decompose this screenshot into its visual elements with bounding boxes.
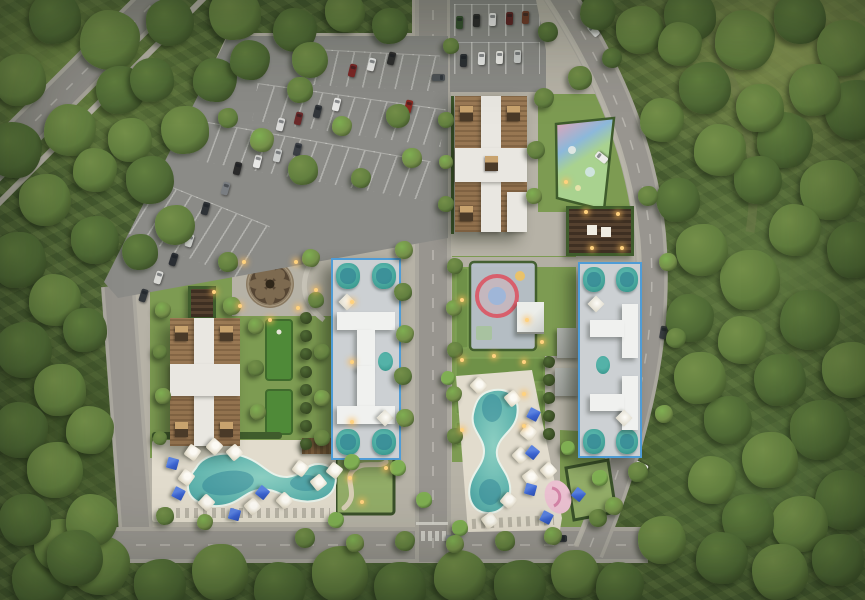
path-light	[522, 360, 526, 364]
path-light	[360, 500, 364, 504]
path-light	[268, 318, 272, 322]
path-light	[350, 420, 354, 424]
path-light	[238, 304, 242, 308]
path-light	[525, 318, 529, 322]
path-light	[242, 260, 246, 264]
path-light	[584, 210, 588, 214]
site-plan	[0, 0, 865, 600]
lights-layer	[0, 0, 865, 600]
path-light	[522, 424, 526, 428]
path-light	[460, 428, 464, 432]
path-light	[492, 354, 496, 358]
path-light	[540, 340, 544, 344]
path-light	[564, 180, 568, 184]
path-light	[348, 476, 352, 480]
path-light	[350, 300, 354, 304]
path-light	[522, 392, 526, 396]
path-light	[294, 260, 298, 264]
path-light	[460, 358, 464, 362]
path-light	[212, 290, 216, 294]
path-light	[384, 466, 388, 470]
path-light	[296, 306, 300, 310]
path-light	[350, 360, 354, 364]
path-light	[620, 246, 624, 250]
path-light	[314, 288, 318, 292]
path-light	[590, 246, 594, 250]
path-light	[460, 298, 464, 302]
path-light	[616, 212, 620, 216]
